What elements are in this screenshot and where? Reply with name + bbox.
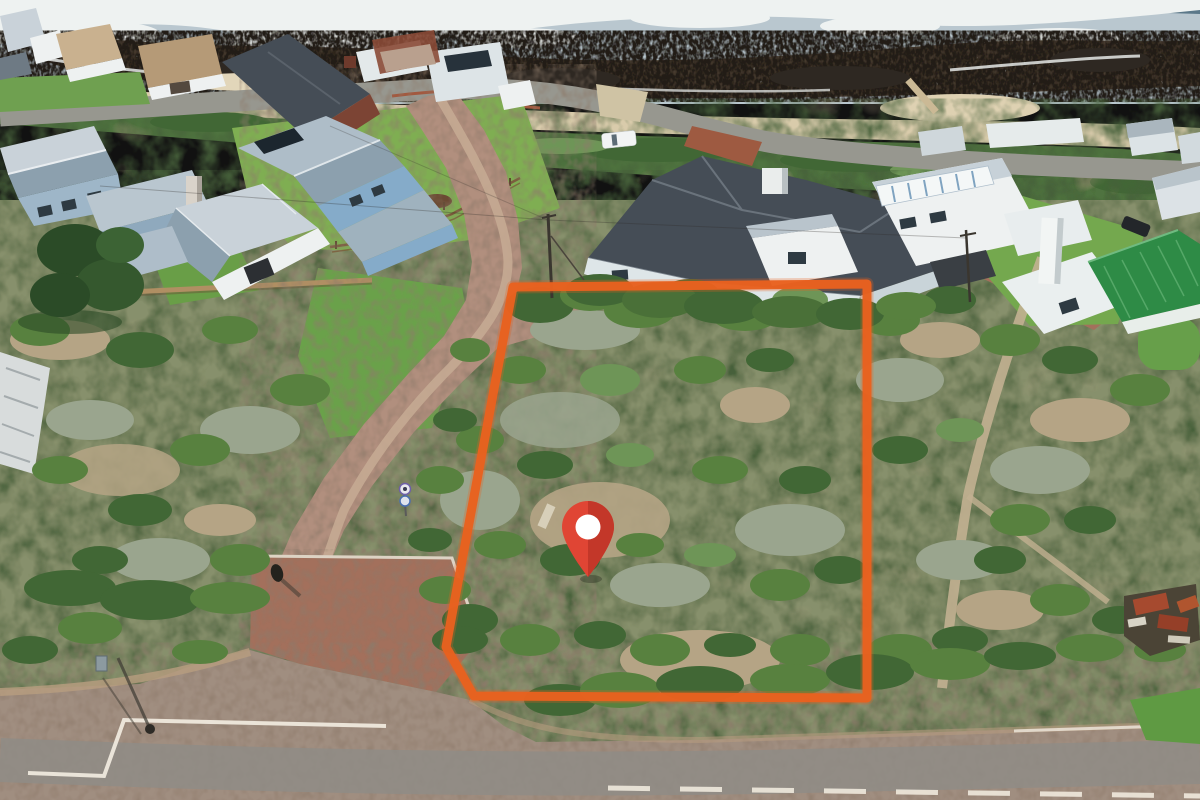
bush [816, 298, 884, 330]
bush [980, 324, 1040, 356]
bush [770, 634, 830, 666]
bush [616, 533, 664, 557]
bush [684, 543, 736, 567]
bush [58, 612, 122, 644]
foam-patch [820, 16, 940, 36]
bush [704, 633, 756, 657]
bush [684, 288, 764, 324]
tree-canopy [30, 273, 90, 317]
bush [1056, 634, 1124, 662]
bush [936, 418, 984, 442]
sand-patch [720, 387, 790, 423]
bush [974, 546, 1026, 574]
bush [910, 648, 990, 680]
dry-patch [990, 446, 1090, 494]
bush [1042, 346, 1098, 374]
bush [1110, 374, 1170, 406]
sand-patch [1030, 398, 1130, 442]
dry-patch [735, 504, 845, 556]
shed [426, 42, 510, 102]
sand-spit [880, 94, 1040, 122]
sand-patch [956, 590, 1044, 630]
bush [574, 621, 626, 649]
bush [32, 456, 88, 484]
bush [692, 456, 748, 484]
bush [500, 624, 560, 656]
chimney-shade [782, 168, 788, 194]
bush [1064, 506, 1116, 534]
bush [606, 443, 654, 467]
bush [408, 528, 452, 552]
truck-body [601, 130, 636, 148]
bush [779, 466, 831, 494]
road-worn-band [0, 760, 1200, 774]
sand-patch [184, 504, 256, 536]
bush [990, 504, 1050, 536]
road-sign [96, 656, 107, 671]
bush [474, 531, 526, 559]
bush [450, 338, 490, 362]
bush [210, 544, 270, 576]
bush [100, 580, 200, 620]
bush [106, 332, 174, 368]
dry-patch [500, 392, 620, 448]
pin-dot [576, 515, 601, 540]
bush [814, 556, 866, 584]
street-lamp [145, 724, 155, 734]
bush [270, 374, 330, 406]
bush [984, 642, 1056, 670]
round-sign [400, 496, 410, 506]
rock-clump [770, 66, 910, 90]
foam-patch [630, 8, 770, 28]
bush [872, 436, 928, 464]
bush [517, 451, 573, 479]
bush [108, 494, 172, 526]
scene-svg [0, 0, 1200, 800]
bush [433, 408, 477, 432]
bush [72, 546, 128, 574]
bush [190, 582, 270, 614]
bush [746, 348, 794, 372]
sign-glyph [403, 487, 407, 491]
bush [416, 466, 464, 494]
window [788, 252, 806, 264]
bush [170, 434, 230, 466]
bush [2, 636, 58, 664]
bush [876, 292, 936, 320]
bush [1030, 584, 1090, 616]
dry-patch [46, 400, 134, 440]
bush [630, 634, 690, 666]
bush [750, 569, 810, 601]
aerial-photo [0, 0, 1200, 800]
white-truck [601, 130, 636, 148]
bush [172, 640, 228, 664]
tree-canopy [96, 227, 144, 263]
pin-shadow [580, 575, 602, 583]
bush [202, 316, 258, 344]
dry-patch [610, 563, 710, 607]
chimney [344, 56, 356, 68]
bush [674, 356, 726, 384]
bush [580, 364, 640, 396]
